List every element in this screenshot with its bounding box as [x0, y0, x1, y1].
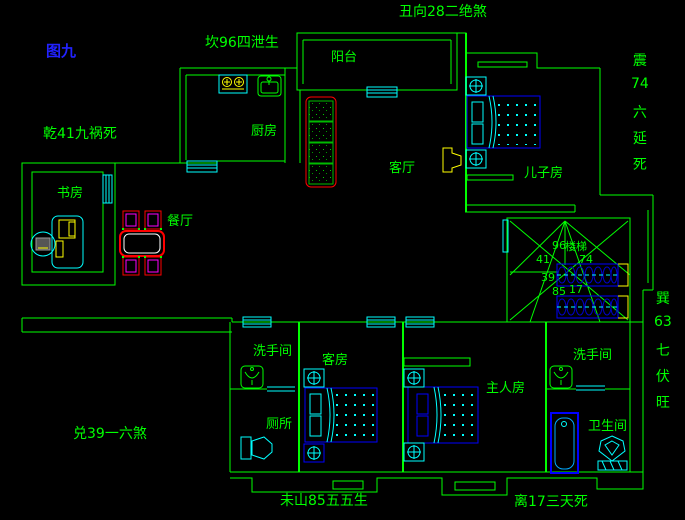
- figure-label: 图九: [46, 44, 76, 58]
- toilet-right-icon: [598, 436, 627, 470]
- toilet-left-icon: [241, 437, 272, 459]
- master-bed: [408, 387, 478, 443]
- guest-bed: [305, 388, 377, 442]
- compass-top-center: 丑向28二绝煞: [399, 5, 487, 19]
- room-label-washroom-left: 洗手间: [253, 345, 292, 359]
- desk-icon: [52, 216, 83, 268]
- room-label-balcony: 阳台: [331, 51, 357, 65]
- stair-treads: [557, 264, 628, 318]
- bathtub-icon: [551, 413, 578, 473]
- room-label-guest-room: 客房: [322, 354, 348, 368]
- compass-right-lower: 巽 63 七 伏 旺: [654, 288, 672, 418]
- dining-chairs: [122, 211, 162, 275]
- sofa: [306, 97, 336, 187]
- stair-number-upper-left: 41: [536, 254, 550, 265]
- desk-chair-icon: [31, 232, 55, 256]
- room-label-son-room: 儿子房: [524, 167, 563, 181]
- washbasin-right-icon: [550, 366, 572, 388]
- stair-number-left: 39: [541, 272, 555, 283]
- washbasin-left-icon: [241, 366, 263, 388]
- room-label-bathroom: 卫生间: [588, 420, 627, 434]
- stair-number-upper-right: 74: [579, 254, 593, 265]
- compass-left-upper: 乾41九祸死: [43, 127, 117, 141]
- compass-bottom-right: 离17三天死: [514, 495, 588, 509]
- room-label-study: 书房: [57, 187, 83, 201]
- tv-icon: [443, 148, 461, 172]
- room-label-living-room: 客厅: [389, 162, 415, 176]
- stair-number-lower-right: 17: [569, 284, 583, 295]
- compass-left-lower: 兑39一六煞: [73, 427, 147, 441]
- room-label-stairs: 楼梯: [565, 240, 587, 254]
- room-label-toilet: 厕所: [266, 418, 292, 432]
- compass-top-left: 坎96四泄生: [205, 36, 279, 50]
- room-label-kitchen: 厨房: [251, 125, 277, 139]
- dining-table: [120, 231, 164, 256]
- kitchen-sink-icon: [258, 76, 281, 96]
- stove-icon: [219, 75, 247, 93]
- room-label-master-room: 主人房: [486, 382, 525, 396]
- cad-floor-plan: 图九 坎96四泄生 丑向28二绝煞 乾41九祸死 兑39一六煞 未山85五五生 …: [0, 0, 685, 520]
- son-bed: [467, 96, 540, 148]
- stair-number-lower-left: 85: [552, 286, 566, 297]
- room-label-dining: 餐厅: [167, 215, 193, 229]
- stair-number-top: 96: [552, 240, 566, 251]
- room-label-washroom-right: 洗手间: [573, 349, 612, 363]
- compass-bottom-left: 未山85五五生: [280, 494, 368, 508]
- compass-right-upper: 震 74 六 延 死: [631, 50, 649, 180]
